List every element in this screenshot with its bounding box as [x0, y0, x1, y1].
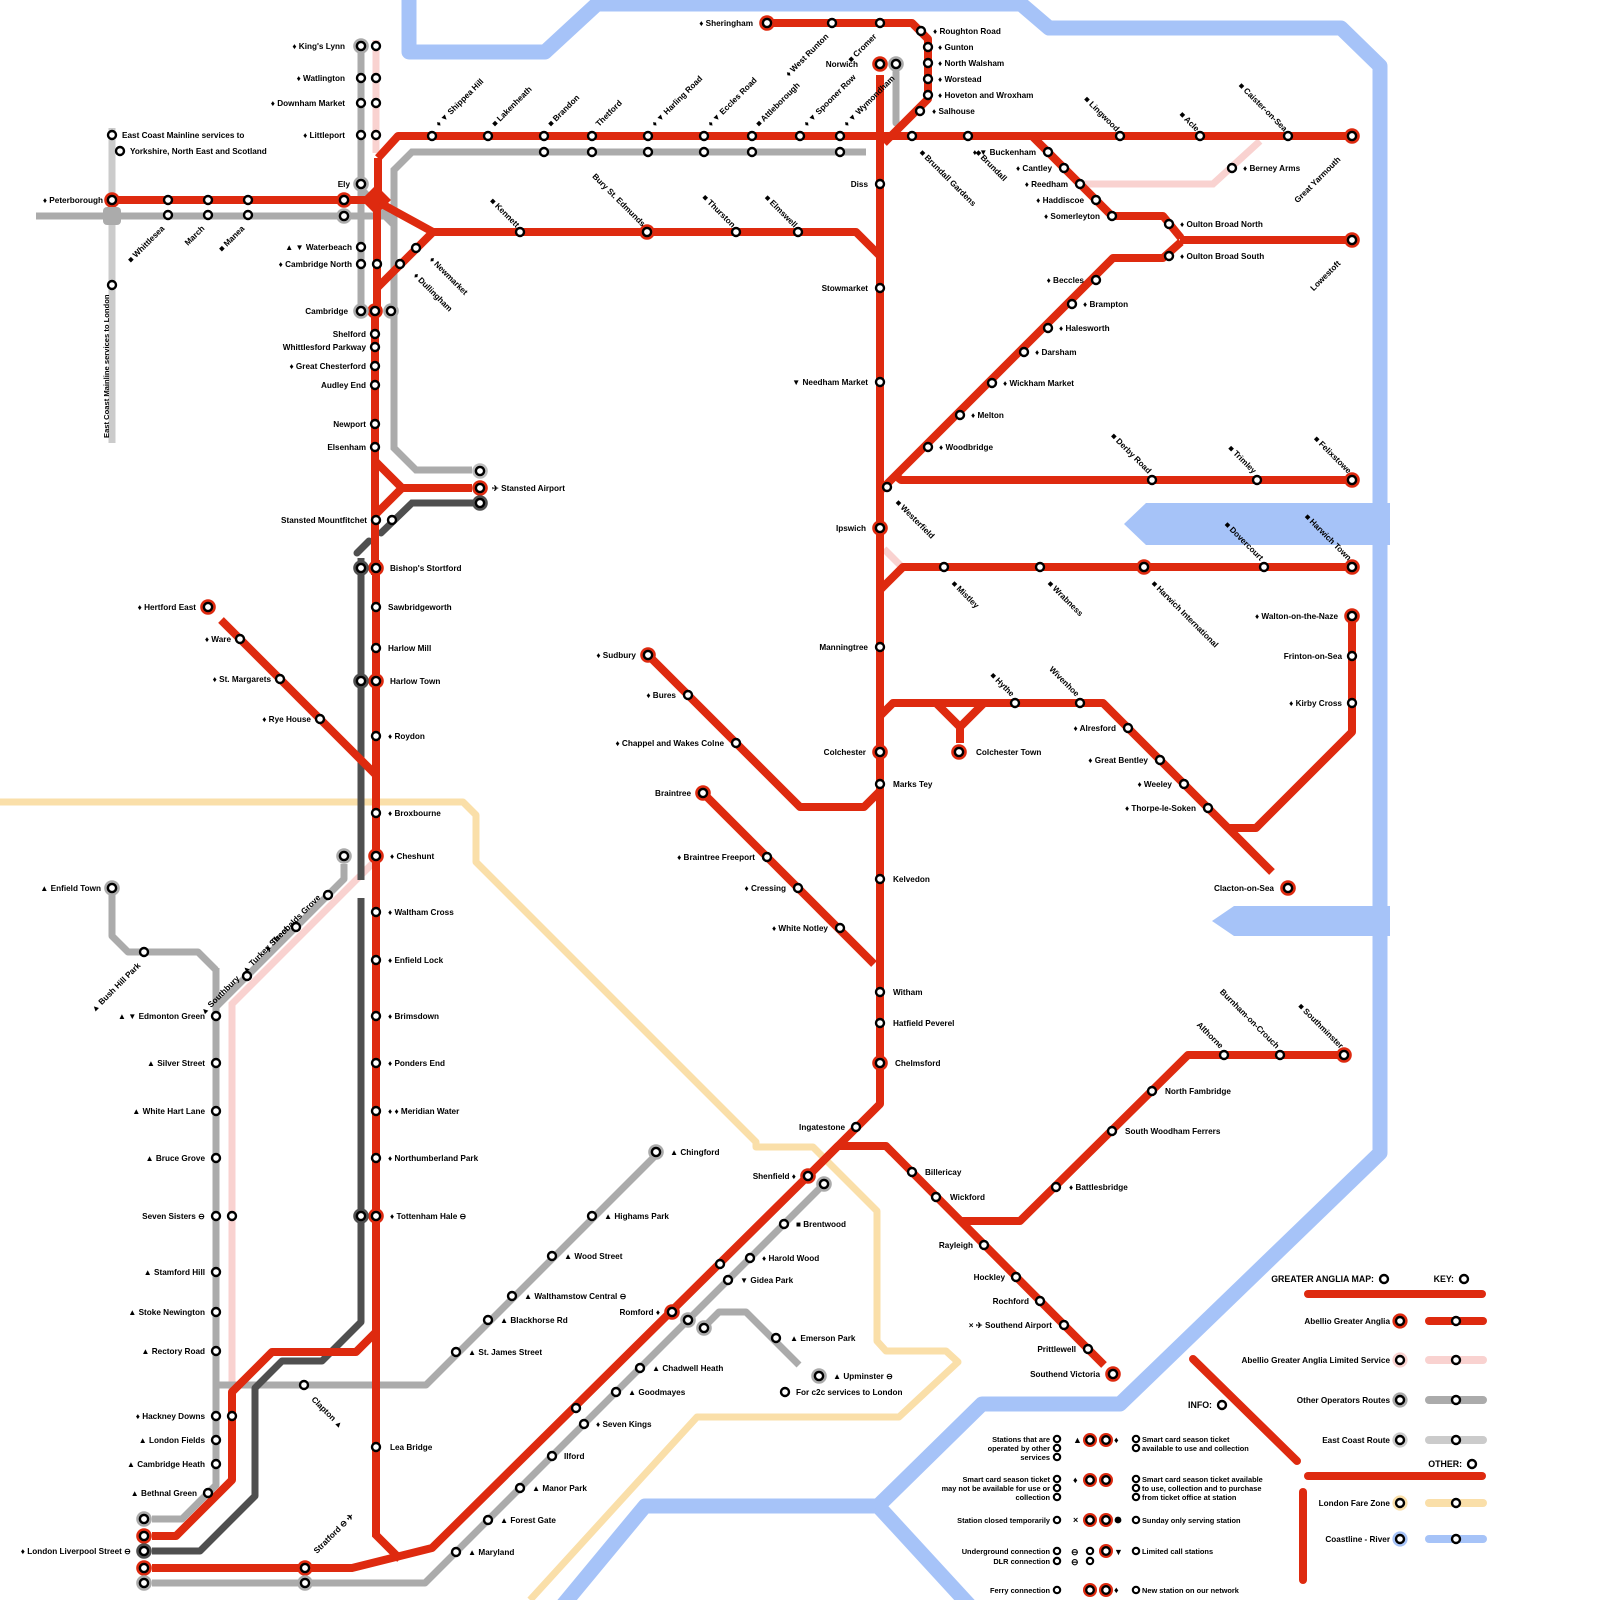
svg-text:▲ Stamford Hill: ▲ Stamford Hill [144, 1268, 205, 1277]
svg-text:Ely: Ely [338, 180, 351, 189]
svg-text:East Coast Mainline services t: East Coast Mainline services to London [102, 294, 111, 438]
svg-text:Billericay: Billericay [925, 1168, 962, 1177]
svg-text:operated by other: operated by other [988, 1444, 1051, 1453]
svg-text:East Coast Mainline services t: East Coast Mainline services to [122, 131, 244, 140]
svg-text:✈ Stansted Airport: ✈ Stansted Airport [492, 484, 565, 493]
svg-text:available to use and collectio: available to use and collection [1142, 1444, 1249, 1453]
svg-text:Prittlewell: Prittlewell [1037, 1345, 1076, 1354]
svg-text:Witham: Witham [893, 988, 923, 997]
svg-text:♦: ♦ [1114, 1435, 1119, 1445]
svg-text:▲ London Fields: ▲ London Fields [139, 1436, 206, 1445]
svg-text:Clacton-on-Sea: Clacton-on-Sea [1214, 884, 1274, 893]
svg-text:♦ Walton-on-the-Naze: ♦ Walton-on-the-Naze [1255, 612, 1338, 621]
svg-text:▲ Stoke Newington: ▲ Stoke Newington [128, 1308, 205, 1317]
svg-text:⊖: ⊖ [1071, 1547, 1079, 1557]
svg-text:services: services [1020, 1453, 1050, 1462]
svg-text:▲ Blackhorse Rd: ▲ Blackhorse Rd [500, 1316, 568, 1325]
svg-text:▲ ▼ Waterbeach: ▲ ▼ Waterbeach [285, 243, 352, 252]
svg-text:Smart card season ticket avail: Smart card season ticket available [1142, 1475, 1263, 1484]
svg-text:▲ Manor Park: ▲ Manor Park [532, 1484, 587, 1493]
svg-text:Harlow Mill: Harlow Mill [388, 644, 431, 653]
svg-text:Shenfield ♦: Shenfield ♦ [753, 1172, 796, 1181]
svg-text:♦ London Liverpool Street ⊖: ♦ London Liverpool Street ⊖ [21, 1547, 131, 1556]
svg-text:▲ St. James Street: ▲ St. James Street [468, 1348, 542, 1357]
svg-text:Marks Tey: Marks Tey [893, 780, 933, 789]
svg-text:Shelford: Shelford [333, 330, 366, 339]
svg-text:♦ Darsham: ♦ Darsham [1035, 348, 1077, 357]
svg-text:▼ Gidea Park: ▼ Gidea Park [740, 1276, 794, 1285]
svg-text:♦ Melton: ♦ Melton [971, 411, 1004, 420]
svg-text:▲ Upminster ⊖: ▲ Upminster ⊖ [833, 1372, 893, 1381]
svg-text:♦: ♦ [1114, 1585, 1119, 1595]
svg-text:For c2c services to London: For c2c services to London [796, 1388, 902, 1397]
svg-text:may not be available for use o: may not be available for use or [942, 1484, 1051, 1493]
svg-text:Rayleigh: Rayleigh [939, 1241, 973, 1250]
svg-text:♦ Battlesbridge: ♦ Battlesbridge [1069, 1183, 1128, 1192]
svg-text:Station closed temporarily: Station closed temporarily [957, 1516, 1051, 1525]
svg-text:♦ Alresford: ♦ Alresford [1073, 724, 1116, 733]
svg-text:♦ Hoveton and Wroxham: ♦ Hoveton and Wroxham [938, 91, 1033, 100]
svg-text:▲ ▼ Edmonton Green: ▲ ▼ Edmonton Green [118, 1012, 205, 1021]
svg-text:♦ Enfield Lock: ♦ Enfield Lock [388, 956, 444, 965]
svg-text:♦ Ponders End: ♦ Ponders End [388, 1059, 445, 1068]
svg-text:Underground connection: Underground connection [962, 1547, 1051, 1556]
svg-text:♦ Broxbourne: ♦ Broxbourne [388, 809, 441, 818]
svg-text:♦ ♦ Meridian Water: ♦ ♦ Meridian Water [388, 1107, 460, 1116]
svg-text:from ticket office at station: from ticket office at station [1142, 1493, 1237, 1502]
svg-text:▲ Cambridge Heath: ▲ Cambridge Heath [127, 1460, 205, 1469]
svg-text:KEY:: KEY: [1434, 1274, 1454, 1284]
svg-text:Harlow Town: Harlow Town [390, 677, 440, 686]
svg-text:♦ Reedham: ♦ Reedham [1025, 180, 1068, 189]
svg-text:▲ Bethnal Green: ▲ Bethnal Green [131, 1489, 197, 1498]
svg-text:♦ Cantley: ♦ Cantley [1016, 164, 1052, 173]
svg-text:Hatfield Peverel: Hatfield Peverel [893, 1019, 954, 1028]
svg-text:▼: ▼ [1114, 1547, 1123, 1557]
svg-text:East Coast Route: East Coast Route [1322, 1436, 1390, 1445]
svg-text:♦ White Notley: ♦ White Notley [772, 924, 828, 933]
svg-text:Sawbridgeworth: Sawbridgeworth [388, 603, 452, 612]
svg-text:♦ Great Chesterford: ♦ Great Chesterford [289, 362, 366, 371]
svg-text:♦ Gunton: ♦ Gunton [938, 43, 974, 52]
svg-text:Whittlesford Parkway: Whittlesford Parkway [283, 343, 367, 352]
svg-text:Lea Bridge: Lea Bridge [390, 1443, 433, 1452]
svg-text:♦ Roydon: ♦ Roydon [388, 732, 425, 741]
svg-text:♦ Littleport: ♦ Littleport [303, 131, 345, 140]
svg-text:Cambridge: Cambridge [305, 307, 348, 316]
svg-text:▲ Emerson Park: ▲ Emerson Park [790, 1334, 856, 1343]
svg-text:♦ Hackney Downs: ♦ Hackney Downs [136, 1412, 206, 1421]
svg-text:Chelmsford: Chelmsford [895, 1059, 941, 1068]
svg-text:▲: ▲ [1073, 1435, 1082, 1445]
svg-text:Ipswich: Ipswich [836, 524, 866, 533]
svg-text:South Woodham Ferrers: South Woodham Ferrers [1125, 1127, 1221, 1136]
svg-text:♦ Somerleyton: ♦ Somerleyton [1044, 212, 1100, 221]
svg-text:♦ Seven Kings: ♦ Seven Kings [596, 1420, 652, 1429]
svg-text:▲ Wood Street: ▲ Wood Street [564, 1252, 623, 1261]
svg-text:▲ Walthamstow Central ⊖: ▲ Walthamstow Central ⊖ [524, 1292, 627, 1301]
svg-text:▲ Forest Gate: ▲ Forest Gate [500, 1516, 556, 1525]
svg-text:to use, collection and to purc: to use, collection and to purchase [1142, 1484, 1262, 1493]
svg-text:♦ Halesworth: ♦ Halesworth [1059, 324, 1110, 333]
svg-text:♦ Waltham Cross: ♦ Waltham Cross [388, 908, 454, 917]
svg-text:▲ Highams Park: ▲ Highams Park [604, 1212, 669, 1221]
svg-text:OTHER:: OTHER: [1428, 1459, 1462, 1469]
svg-text:Rochford: Rochford [993, 1297, 1029, 1306]
svg-text:Wickford: Wickford [950, 1193, 985, 1202]
svg-text:♦ Ware: ♦ Ware [205, 635, 232, 644]
svg-text:Ferry connection: Ferry connection [990, 1586, 1050, 1595]
svg-text:♦ Harold Wood: ♦ Harold Wood [762, 1254, 819, 1263]
svg-text:♦ Brimsdown: ♦ Brimsdown [388, 1012, 439, 1021]
svg-text:▲ White Hart Lane: ▲ White Hart Lane [132, 1107, 205, 1116]
svg-text:♦: ♦ [1073, 1475, 1078, 1485]
svg-text:Colchester: Colchester [824, 748, 867, 757]
svg-text:▲ Enfield Town: ▲ Enfield Town [40, 884, 101, 893]
svg-text:♦ Wickham Market: ♦ Wickham Market [1003, 379, 1074, 388]
svg-text:▼ Needham Market: ▼ Needham Market [792, 378, 868, 387]
svg-text:Braintree: Braintree [655, 789, 691, 798]
svg-text:♦ Oulton Broad North: ♦ Oulton Broad North [1180, 220, 1263, 229]
svg-text:Southend Victoria: Southend Victoria [1030, 1370, 1100, 1379]
svg-text:♦ Salhouse: ♦ Salhouse [932, 107, 975, 116]
svg-text:♦ Kirby Cross: ♦ Kirby Cross [1289, 699, 1342, 708]
svg-text:♦ Berney Arms: ♦ Berney Arms [1243, 164, 1301, 173]
svg-text:♦ Sudbury: ♦ Sudbury [596, 651, 636, 660]
svg-text:♦ Chappel and Wakes Colne: ♦ Chappel and Wakes Colne [615, 739, 724, 748]
svg-text:London Fare Zone: London Fare Zone [1319, 1499, 1391, 1508]
svg-text:♦ Great Bentley: ♦ Great Bentley [1088, 756, 1148, 765]
svg-text:Stansted Mountfitchet: Stansted Mountfitchet [281, 516, 367, 525]
svg-text:♦ Brampton: ♦ Brampton [1083, 300, 1128, 309]
svg-text:♦ Rye House: ♦ Rye House [262, 715, 311, 724]
svg-text:Abellio Greater Anglia: Abellio Greater Anglia [1304, 1317, 1390, 1326]
svg-text:Other Operators Routes: Other Operators Routes [1297, 1396, 1391, 1405]
svg-text:Romford ♦: Romford ♦ [619, 1308, 660, 1317]
svg-text:♦ Hertford East: ♦ Hertford East [138, 603, 197, 612]
svg-text:♦ Roughton Road: ♦ Roughton Road [933, 27, 1001, 36]
svg-text:♦ Tottenham Hale ⊖: ♦ Tottenham Hale ⊖ [390, 1212, 467, 1221]
svg-text:×: × [1073, 1515, 1078, 1525]
svg-text:Ilford: Ilford [564, 1452, 584, 1461]
svg-text:North Fambridge: North Fambridge [1165, 1087, 1231, 1096]
svg-text:Stowmarket: Stowmarket [822, 284, 869, 293]
svg-text:Newport: Newport [333, 420, 366, 429]
svg-text:♦ Peterborough: ♦ Peterborough [43, 196, 103, 205]
svg-text:Elsenham: Elsenham [327, 443, 366, 452]
svg-text:Kelvedon: Kelvedon [893, 875, 930, 884]
svg-text:Abellio Greater Anglia Limited: Abellio Greater Anglia Limited Service [1242, 1356, 1391, 1365]
svg-text:Diss: Diss [851, 180, 869, 189]
svg-text:Manningtree: Manningtree [819, 643, 868, 652]
svg-text:Smart card season ticket: Smart card season ticket [963, 1475, 1051, 1484]
svg-text:♦ Bures: ♦ Bures [646, 691, 676, 700]
svg-text:⊖: ⊖ [1071, 1557, 1079, 1567]
svg-text:Limited call stations: Limited call stations [1142, 1547, 1213, 1556]
svg-text:♦ Braintree Freeport: ♦ Braintree Freeport [677, 853, 755, 862]
svg-text:New station on our network: New station on our network [1142, 1586, 1240, 1595]
svg-text:♦ Oulton Broad South: ♦ Oulton Broad South [1180, 252, 1264, 261]
svg-text:Smart card season ticket: Smart card season ticket [1142, 1435, 1230, 1444]
svg-text:▲ Maryland: ▲ Maryland [468, 1548, 514, 1557]
svg-text:♦ Haddiscoe: ♦ Haddiscoe [1036, 196, 1084, 205]
svg-text:♦ Cressing: ♦ Cressing [745, 884, 787, 893]
svg-text:Yorkshire, North East and Scot: Yorkshire, North East and Scotland [130, 147, 267, 156]
svg-text:■ Brentwood: ■ Brentwood [796, 1220, 846, 1229]
svg-text:▲ Chingford: ▲ Chingford [670, 1148, 720, 1157]
svg-text:♦ Weeley: ♦ Weeley [1137, 780, 1172, 789]
svg-text:♦ St. Margarets: ♦ St. Margarets [213, 675, 272, 684]
svg-text:▲ Silver Street: ▲ Silver Street [147, 1059, 205, 1068]
svg-text:Stations that are: Stations that are [992, 1435, 1050, 1444]
svg-text:Colchester Town: Colchester Town [976, 748, 1041, 757]
svg-text:♦ Thorpe-le-Soken: ♦ Thorpe-le-Soken [1125, 804, 1196, 813]
svg-text:♦ North Walsham: ♦ North Walsham [938, 59, 1004, 68]
svg-text:♦ Worstead: ♦ Worstead [938, 75, 982, 84]
svg-text:DLR connection: DLR connection [993, 1557, 1050, 1566]
svg-text:collection: collection [1016, 1493, 1051, 1502]
svg-text:▲ Chadwell Heath: ▲ Chadwell Heath [652, 1364, 723, 1373]
svg-text:Ingatestone: Ingatestone [799, 1123, 845, 1132]
svg-text:GREATER ANGLIA MAP:: GREATER ANGLIA MAP: [1271, 1274, 1374, 1284]
svg-text:♦ Beccles: ♦ Beccles [1047, 276, 1085, 285]
svg-text:♦ Northumberland Park: ♦ Northumberland Park [388, 1154, 479, 1163]
svg-text:♦ Downham Market: ♦ Downham Market [271, 99, 346, 108]
svg-text:▲ Bruce Grove: ▲ Bruce Grove [145, 1154, 205, 1163]
svg-text:Seven Sisters ⊖: Seven Sisters ⊖ [142, 1212, 205, 1221]
svg-text:♦ King's Lynn: ♦ King's Lynn [292, 42, 345, 51]
svg-text:Coastline - River: Coastline - River [1325, 1535, 1390, 1544]
svg-text:▲ Goodmayes: ▲ Goodmayes [628, 1388, 686, 1397]
svg-text:♦ Cheshunt: ♦ Cheshunt [390, 852, 434, 861]
svg-text:♦ Cambridge North: ♦ Cambridge North [279, 260, 352, 269]
svg-text:Hockley: Hockley [974, 1273, 1006, 1282]
svg-text:Sunday only serving station: Sunday only serving station [1142, 1516, 1241, 1525]
svg-text:♦ Sheringham: ♦ Sheringham [699, 19, 753, 28]
svg-text:× ✈ Southend Airport: × ✈ Southend Airport [969, 1321, 1052, 1330]
svg-text:INFO:: INFO: [1188, 1400, 1212, 1410]
svg-text:Frinton-on-Sea: Frinton-on-Sea [1284, 652, 1343, 661]
svg-text:♦ Watlington: ♦ Watlington [297, 74, 345, 83]
svg-text:Audley End: Audley End [321, 381, 366, 390]
svg-text:▲ Rectory Road: ▲ Rectory Road [141, 1347, 205, 1356]
svg-text:♦ Woodbridge: ♦ Woodbridge [939, 443, 994, 452]
svg-text:Bishop's Stortford: Bishop's Stortford [390, 564, 462, 573]
